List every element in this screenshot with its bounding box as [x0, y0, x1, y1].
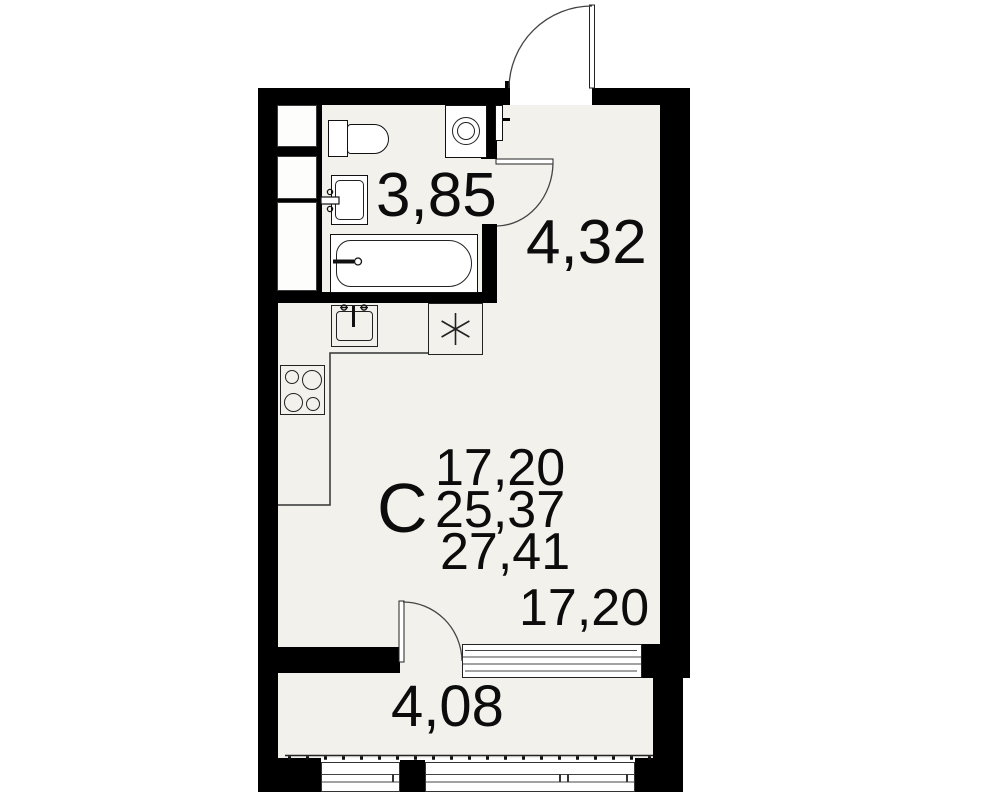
wall-balcony-left-band — [278, 647, 400, 673]
appliance-niche — [428, 303, 483, 355]
glazing-panel-right — [425, 762, 635, 792]
stove-burner-bl — [284, 393, 303, 412]
area-stack-line-3: 27,41 — [440, 526, 570, 578]
toilet-bowl — [347, 124, 389, 154]
toilet-tank — [328, 120, 348, 157]
wall-balcony-pillar — [400, 760, 425, 792]
wall-bathroom-bottom — [278, 292, 497, 303]
kitchen-sink-inner — [336, 311, 373, 341]
balcony-area-label: 4,08 — [391, 678, 504, 736]
washing-machine-drum-inner — [457, 122, 475, 140]
stove-burner-tr — [302, 370, 322, 390]
wall-top-left — [258, 88, 510, 105]
hallway-area-label: 4,32 — [526, 212, 647, 274]
entry-door-arc — [509, 6, 592, 88]
bathroom-jamb-tick — [502, 118, 510, 121]
glazing-panel-left — [321, 762, 400, 792]
stove-burner-tl — [285, 370, 299, 384]
bathroom-area-label: 3,85 — [376, 165, 497, 227]
living-area-label: 17,20 — [519, 582, 649, 634]
entry-doorstop-right — [590, 81, 595, 88]
vent-shaft-1 — [277, 105, 317, 147]
bathtub-inner — [336, 240, 472, 287]
bathroom-door-jamb — [495, 105, 503, 141]
wall-right — [660, 88, 690, 648]
wall-balcony-bottom-right — [635, 758, 683, 792]
floorplan-canvas: 3,85 4,32 С 17,20 25,37 27,41 17,20 4,08 — [0, 0, 1000, 800]
entry-door-leaf — [590, 5, 595, 88]
stove-burner-br — [306, 397, 320, 411]
window-frame — [462, 644, 642, 678]
vent-shaft-2 — [277, 156, 317, 199]
wall-window-right-block — [640, 644, 690, 678]
washbasin-inner — [335, 180, 364, 220]
entry-doorstop-left — [505, 81, 510, 88]
vent-shaft-3 — [277, 202, 317, 291]
studio-letter: С — [377, 473, 428, 543]
wall-balcony-corner — [258, 758, 321, 792]
